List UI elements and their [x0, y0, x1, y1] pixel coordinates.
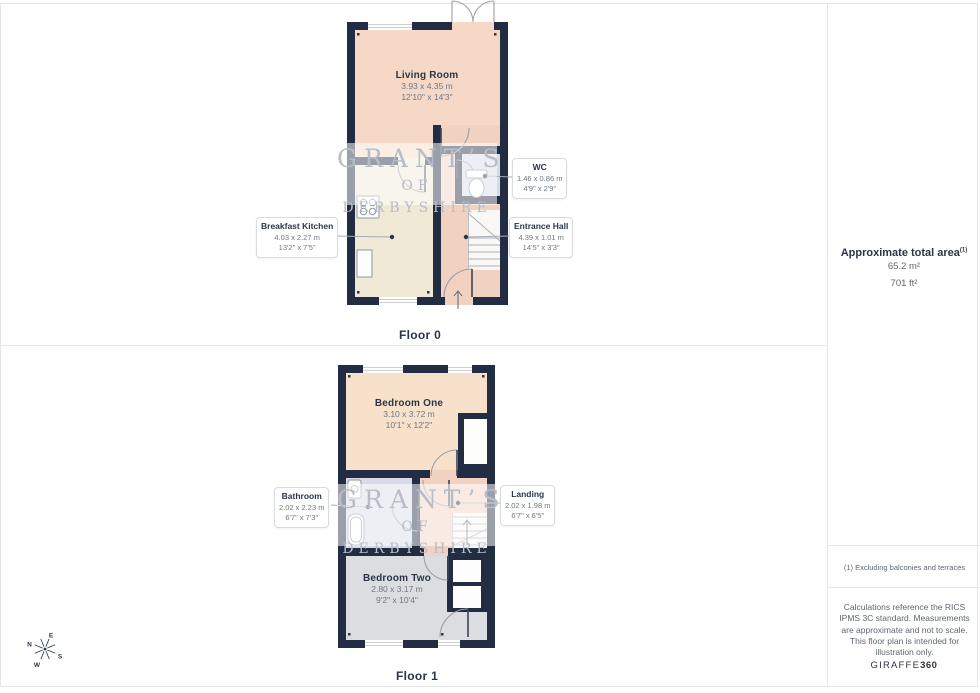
watermark-line1: GRANT’S	[337, 484, 497, 516]
disclaimer-text: Calculations reference the RICS IPMS 3C …	[838, 602, 971, 658]
window	[379, 297, 417, 305]
window	[368, 22, 412, 30]
brand-name: GIRAFFE	[871, 660, 921, 671]
footnote-marker: (1)	[960, 247, 967, 253]
total-area-block: Approximate total area(1) 65.2 m² 701 ft…	[828, 247, 980, 292]
watermark-line2: OF DERBYSHIRE	[337, 516, 497, 560]
watermark: GRANT’S OF DERBYSHIRE	[337, 484, 497, 546]
wc-label: WC 1.46 x 0.86 m 4'9" x 2'9"	[512, 158, 567, 199]
front-door-opening	[445, 297, 473, 305]
area-footnote: (1) Excluding balconies and terraces	[832, 563, 977, 572]
floor-sections-divider	[0, 345, 827, 346]
total-area-ft2: 701 ft²	[828, 276, 980, 293]
total-area-m2: 65.2 m²	[828, 259, 980, 276]
total-area-title-text: Approximate total area	[841, 247, 960, 259]
french-door-opening	[452, 22, 494, 30]
sidebar-divider	[828, 545, 980, 546]
wall	[346, 470, 430, 478]
window	[365, 640, 403, 648]
floor1-title: Floor 1	[396, 669, 438, 683]
window	[363, 365, 403, 373]
floor0-title: Floor 0	[399, 328, 441, 342]
window	[438, 640, 460, 648]
wardrobe	[464, 419, 487, 464]
watermark-line2: OF DERBYSHIRE	[337, 175, 497, 219]
living-room-label: Living Room 3.93 x 4.35 m 12'10" x 14'3"	[396, 70, 459, 104]
breakfast-kitchen-label: Breakfast Kitchen 4.03 x 2.27 m 13'2" x …	[256, 217, 338, 258]
wall	[457, 470, 487, 478]
floorplan-page: N E S W GRANT’S OF DERBYSHIRE GRANT’S OF…	[0, 0, 980, 693]
bathroom-label: Bathroom 2.02 x 2.23 m 6'7" x 7'3"	[274, 487, 329, 528]
bedroom-two-label: Bedroom Two 2.80 x 3.17 m 9'2" x 10'4"	[363, 573, 431, 607]
cupboard	[453, 586, 481, 608]
window	[448, 365, 472, 373]
sidebar: Approximate total area(1) 65.2 m² 701 ft…	[827, 3, 980, 687]
entrance-hall-label: Entrance Hall 4.39 x 1.01 m 14'5" x 3'3"	[509, 217, 573, 258]
watermark-line1: GRANT’S	[337, 143, 497, 175]
bedroom-one-label: Bedroom One 3.10 x 3.72 m 10'1" x 12'2"	[375, 398, 443, 432]
bedroom-one-doorway	[430, 470, 457, 478]
sidebar-divider	[828, 587, 980, 588]
brand-suffix: 360	[920, 660, 937, 671]
staircase	[468, 210, 500, 270]
cupboard	[453, 560, 481, 582]
landing-label: Landing 2.02 x 1.98 m 6'7" x 6'5"	[500, 485, 555, 526]
total-area-title: Approximate total area(1)	[828, 247, 980, 259]
brand-logo: GIRAFFE360	[828, 660, 980, 671]
watermark: GRANT’S OF DERBYSHIRE	[337, 143, 497, 205]
